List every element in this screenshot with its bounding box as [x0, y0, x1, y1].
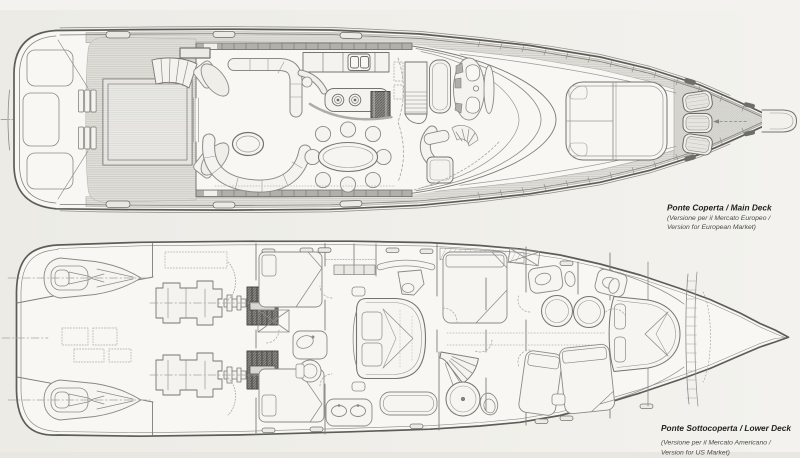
svg-text:(Versione per il Mercato Ameri: (Versione per il Mercato Americano /	[661, 439, 772, 446]
svg-text:(Versione per il Mercato Europ: (Versione per il Mercato Europeo /	[667, 215, 771, 222]
svg-text:Version for European Market): Version for European Market)	[667, 224, 756, 231]
svg-text:Version for US Market): Version for US Market)	[661, 449, 730, 456]
svg-text:Ponte Sottocoperta / Lower Dec: Ponte Sottocoperta / Lower Deck	[661, 423, 791, 433]
svg-text:Ponte Coperta / Main Deck: Ponte Coperta / Main Deck	[667, 203, 772, 213]
